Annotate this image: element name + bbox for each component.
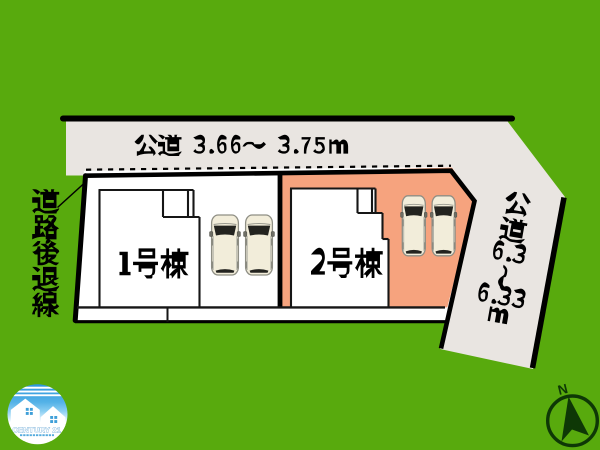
svg-text:CENTURY 21: CENTURY 21 <box>12 425 61 434</box>
